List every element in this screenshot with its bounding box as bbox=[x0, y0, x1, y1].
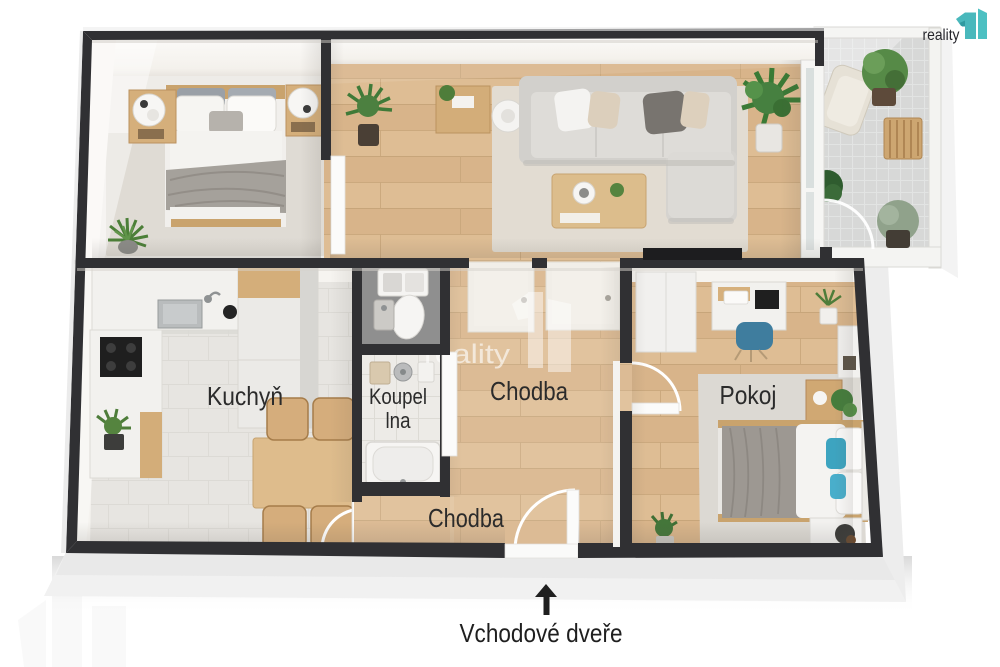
svg-text:Vchodové dveře: Vchodové dveře bbox=[460, 618, 623, 648]
svg-text:Koupel: Koupel bbox=[369, 384, 427, 409]
svg-text:Kuchyň: Kuchyň bbox=[207, 381, 283, 411]
svg-text:Pokoj: Pokoj bbox=[720, 380, 777, 410]
svg-text:lna: lna bbox=[386, 408, 412, 433]
svg-text:reality: reality bbox=[923, 27, 960, 44]
svg-text:Chodba: Chodba bbox=[490, 376, 568, 406]
